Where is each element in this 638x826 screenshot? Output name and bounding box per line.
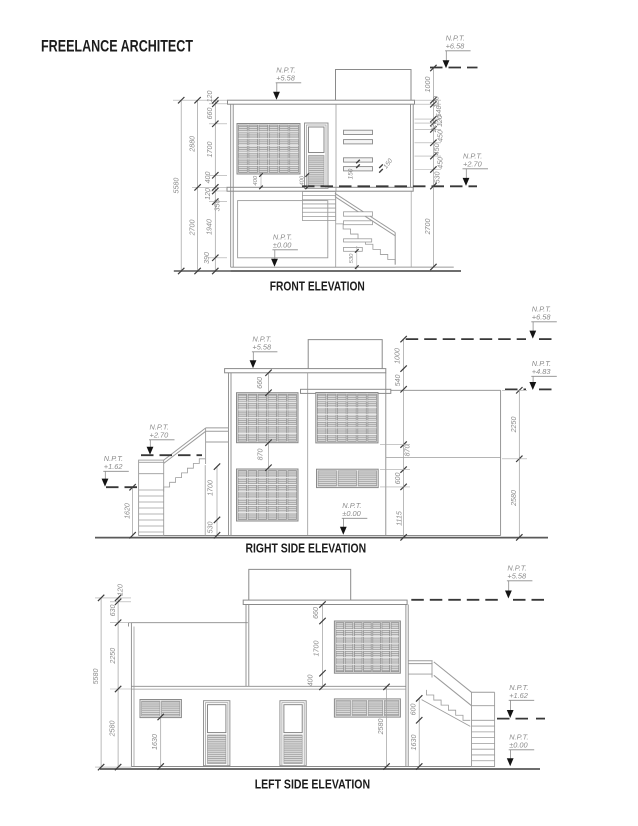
svg-text:600: 600 [394,473,402,485]
svg-text:2880: 2880 [189,136,197,153]
svg-text:2250: 2250 [109,648,117,665]
svg-text:1000: 1000 [394,348,402,364]
svg-text:±0.00: ±0.00 [342,509,361,518]
svg-text:1630: 1630 [410,735,418,751]
svg-text:1630: 1630 [151,734,159,750]
svg-text:400: 400 [299,175,305,186]
svg-text:870: 870 [404,445,412,457]
svg-text:1000: 1000 [424,77,432,93]
svg-text:120: 120 [206,91,214,103]
svg-text:120: 120 [204,188,212,200]
svg-text:RIGHT SIDE ELEVATION: RIGHT SIDE ELEVATION [246,540,367,555]
svg-text:390: 390 [203,252,211,264]
svg-text:120: 120 [117,584,125,596]
svg-text:870: 870 [257,449,265,461]
svg-text:2250: 2250 [510,417,518,434]
svg-text:660: 660 [206,108,214,120]
svg-text:1700: 1700 [207,480,215,496]
svg-text:400: 400 [307,675,315,687]
svg-text:FRONT ELEVATION: FRONT ELEVATION [270,280,365,294]
svg-text:400: 400 [204,172,212,184]
svg-text:5580: 5580 [173,178,181,194]
svg-text:630: 630 [109,605,117,617]
svg-text:530: 530 [207,522,215,534]
svg-text:±0.00: ±0.00 [509,741,528,750]
svg-text:350: 350 [214,200,222,212]
svg-text:540: 540 [394,375,402,387]
svg-text:600: 600 [410,704,418,716]
svg-text:2580: 2580 [109,721,117,738]
svg-text:660: 660 [256,377,264,389]
svg-text:+6.58: +6.58 [532,313,552,322]
svg-text:2700: 2700 [189,220,197,237]
svg-text:530: 530 [434,172,442,184]
svg-text:+1.62: +1.62 [104,462,123,471]
svg-text:1700: 1700 [313,641,321,657]
svg-text:2580: 2580 [377,719,385,736]
svg-text:+1.62: +1.62 [509,691,528,700]
svg-text:+2.70: +2.70 [463,160,483,169]
svg-text:450: 450 [437,130,445,142]
svg-text:LEFT SIDE ELEVATION: LEFT SIDE ELEVATION [255,777,370,792]
svg-text:+5.58: +5.58 [276,74,296,83]
svg-text:530: 530 [349,253,355,264]
svg-text:±0.00: ±0.00 [273,241,292,250]
svg-text:1115: 1115 [396,511,404,526]
svg-text:+5.58: +5.58 [252,343,272,352]
svg-text:FREELANCE ARCHITECT: FREELANCE ARCHITECT [41,37,193,56]
svg-text:150: 150 [382,157,394,170]
svg-text:+4.83: +4.83 [532,367,552,376]
svg-text:1940: 1940 [206,219,214,235]
svg-text:400: 400 [253,175,259,186]
svg-text:2580: 2580 [510,490,518,507]
svg-text:+2.70: +2.70 [150,431,170,440]
svg-text:+5.58: +5.58 [507,572,527,581]
svg-text:1620: 1620 [123,503,131,519]
svg-text:450: 450 [433,143,441,155]
svg-text:1700: 1700 [206,142,214,158]
svg-text:5580: 5580 [92,669,100,685]
svg-text:450: 450 [437,157,445,169]
svg-text:2700: 2700 [424,219,432,236]
svg-text:150: 150 [347,168,354,179]
svg-text:+6.58: +6.58 [446,42,466,51]
svg-text:660: 660 [312,607,320,619]
